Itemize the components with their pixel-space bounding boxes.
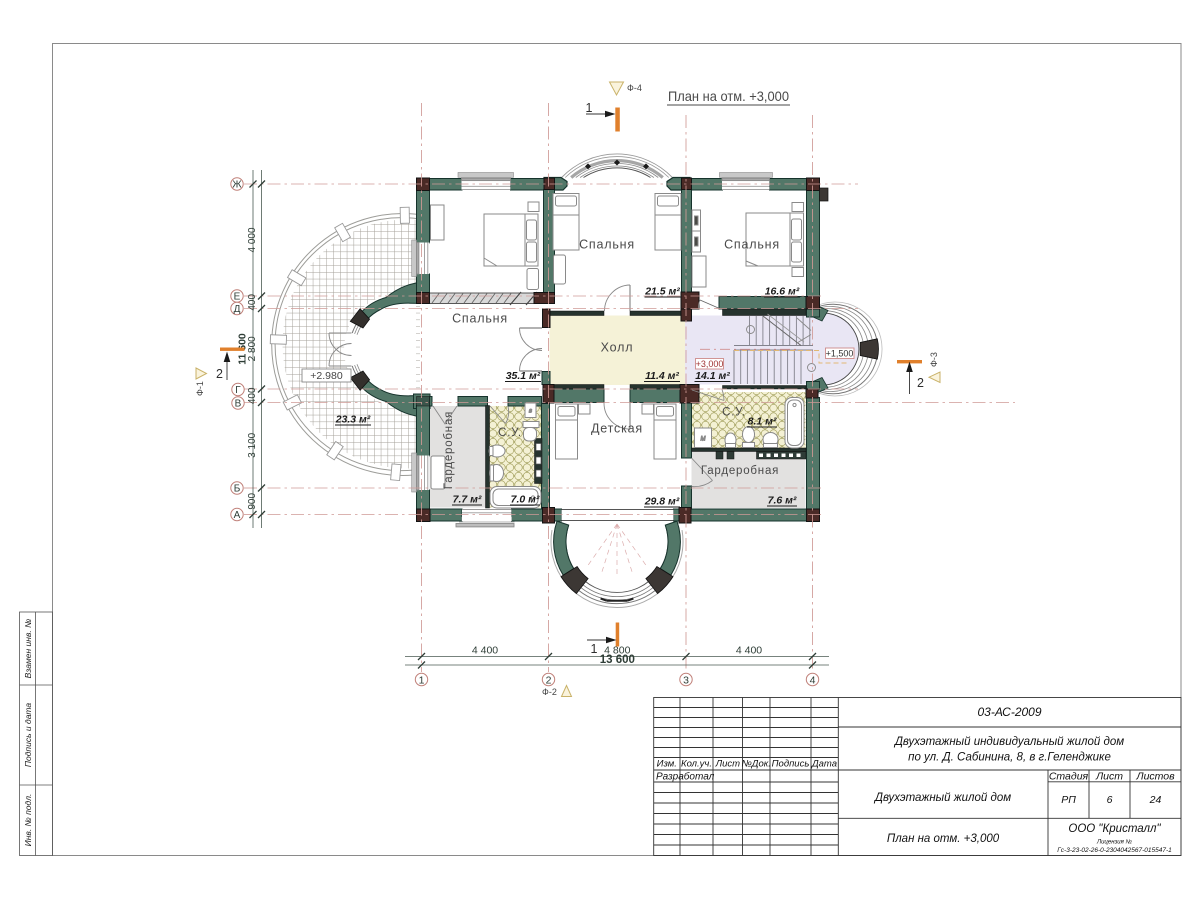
- svg-text:03-АС-2009: 03-АС-2009: [977, 705, 1041, 719]
- svg-text:+3,000: +3,000: [696, 359, 724, 369]
- svg-text:29.8 м²: 29.8 м²: [644, 496, 680, 508]
- svg-text:Кол.уч.: Кол.уч.: [681, 759, 712, 770]
- svg-text:Лицензия №: Лицензия №: [1096, 839, 1133, 846]
- svg-text:Ф-3: Ф-3: [929, 352, 939, 367]
- svg-text:14.1 м²: 14.1 м²: [695, 370, 730, 382]
- svg-text:6: 6: [1107, 794, 1113, 806]
- svg-text:4: 4: [810, 675, 816, 687]
- svg-text:1: 1: [586, 101, 593, 115]
- svg-text:Дата: Дата: [811, 759, 837, 770]
- svg-text:3: 3: [683, 675, 689, 687]
- svg-text:11.4 м²: 11.4 м²: [645, 370, 679, 382]
- svg-text:Гардеробная: Гардеробная: [443, 411, 455, 489]
- svg-text:4 400: 4 400: [472, 645, 498, 657]
- svg-text:16.6 м²: 16.6 м²: [765, 286, 800, 298]
- svg-text:Подпись и дата: Подпись и дата: [23, 703, 33, 768]
- svg-text:С.У.: С.У.: [722, 407, 746, 419]
- svg-text:Спальня: Спальня: [724, 238, 780, 252]
- svg-text:7.6 м²: 7.6 м²: [768, 495, 797, 507]
- svg-text:Разработал: Разработал: [656, 771, 715, 783]
- svg-text:400: 400: [247, 387, 258, 404]
- svg-text:Изм.: Изм.: [657, 759, 677, 770]
- svg-text:24: 24: [1149, 794, 1162, 806]
- svg-text:Лист: Лист: [715, 759, 741, 770]
- svg-text:В: В: [235, 399, 242, 410]
- svg-text:+1,500: +1,500: [826, 349, 854, 359]
- svg-text:Двухэтажный индивидуальный жил: Двухэтажный индивидуальный жилой дом: [893, 736, 1124, 748]
- svg-text:Б: Б: [234, 484, 241, 495]
- svg-text:РП: РП: [1061, 794, 1076, 806]
- svg-text:2: 2: [917, 376, 924, 390]
- svg-text:Листов: Листов: [1135, 771, 1175, 783]
- svg-text:Ф-1: Ф-1: [195, 381, 205, 396]
- svg-text:Е: Е: [234, 292, 241, 303]
- svg-text:+2.980: +2.980: [310, 370, 343, 382]
- svg-text:7.7 м²: 7.7 м²: [453, 494, 482, 506]
- svg-text:4 400: 4 400: [736, 645, 762, 657]
- svg-text:Г: Г: [235, 385, 241, 396]
- svg-text:900: 900: [247, 493, 258, 510]
- svg-text:в: в: [529, 409, 532, 415]
- svg-text:С.У.: С.У.: [498, 427, 522, 439]
- svg-text:Гардеробная: Гардеробная: [701, 465, 779, 477]
- svg-text:8.1 м²: 8.1 м²: [748, 416, 777, 428]
- svg-text:М: М: [701, 437, 706, 443]
- svg-text:Ф-4: Ф-4: [627, 83, 642, 93]
- svg-text:Двухэтажный жилой дом: Двухэтажный жилой дом: [873, 792, 1011, 804]
- svg-text:4 000: 4 000: [247, 227, 258, 252]
- svg-text:Стадия: Стадия: [1049, 771, 1089, 783]
- svg-text:Спальня: Спальня: [452, 312, 508, 326]
- svg-text:Д: Д: [234, 304, 241, 315]
- svg-text:2: 2: [546, 675, 552, 687]
- svg-text:Детская: Детская: [591, 422, 643, 436]
- svg-text:21.5 м²: 21.5 м²: [644, 286, 680, 298]
- svg-text:23.3 м²: 23.3 м²: [335, 414, 371, 426]
- svg-text:1: 1: [419, 675, 425, 687]
- svg-text:1: 1: [591, 642, 598, 656]
- svg-text:Ж: Ж: [232, 180, 242, 191]
- svg-text:Лист: Лист: [1095, 771, 1123, 783]
- svg-text:ООО "Кристалл": ООО "Кристалл": [1068, 823, 1161, 835]
- svg-text:План на отм. +3,000: План на отм. +3,000: [887, 833, 1000, 845]
- svg-text:13 600: 13 600: [600, 654, 635, 666]
- svg-text:Ф-2: Ф-2: [542, 687, 557, 697]
- svg-text:Подпись: Подпись: [772, 759, 810, 770]
- svg-text:Взамен инв. №: Взамен инв. №: [23, 619, 33, 679]
- svg-text:35.1 м²: 35.1 м²: [506, 370, 541, 382]
- svg-text:Спальня: Спальня: [579, 238, 635, 252]
- svg-text:400: 400: [247, 294, 258, 311]
- svg-text:Холл: Холл: [601, 341, 634, 355]
- svg-text:3 100: 3 100: [247, 432, 258, 457]
- svg-text:А: А: [234, 510, 241, 521]
- svg-text:7.0 м²: 7.0 м²: [511, 494, 540, 506]
- svg-text:Инв. № подл.: Инв. № подл.: [23, 794, 33, 847]
- svg-text:2: 2: [216, 367, 223, 381]
- svg-text:План на отм. +3,000: План на отм. +3,000: [668, 88, 789, 104]
- svg-text:№Док.: №Док.: [742, 759, 771, 770]
- svg-text:Гс-3-23-02-26-0-2304042567-015: Гс-3-23-02-26-0-2304042567-015547-1: [1057, 847, 1172, 854]
- svg-text:по ул. Д. Сабинина, 8, в г.Гел: по ул. Д. Сабинина, 8, в г.Геленджике: [908, 752, 1111, 764]
